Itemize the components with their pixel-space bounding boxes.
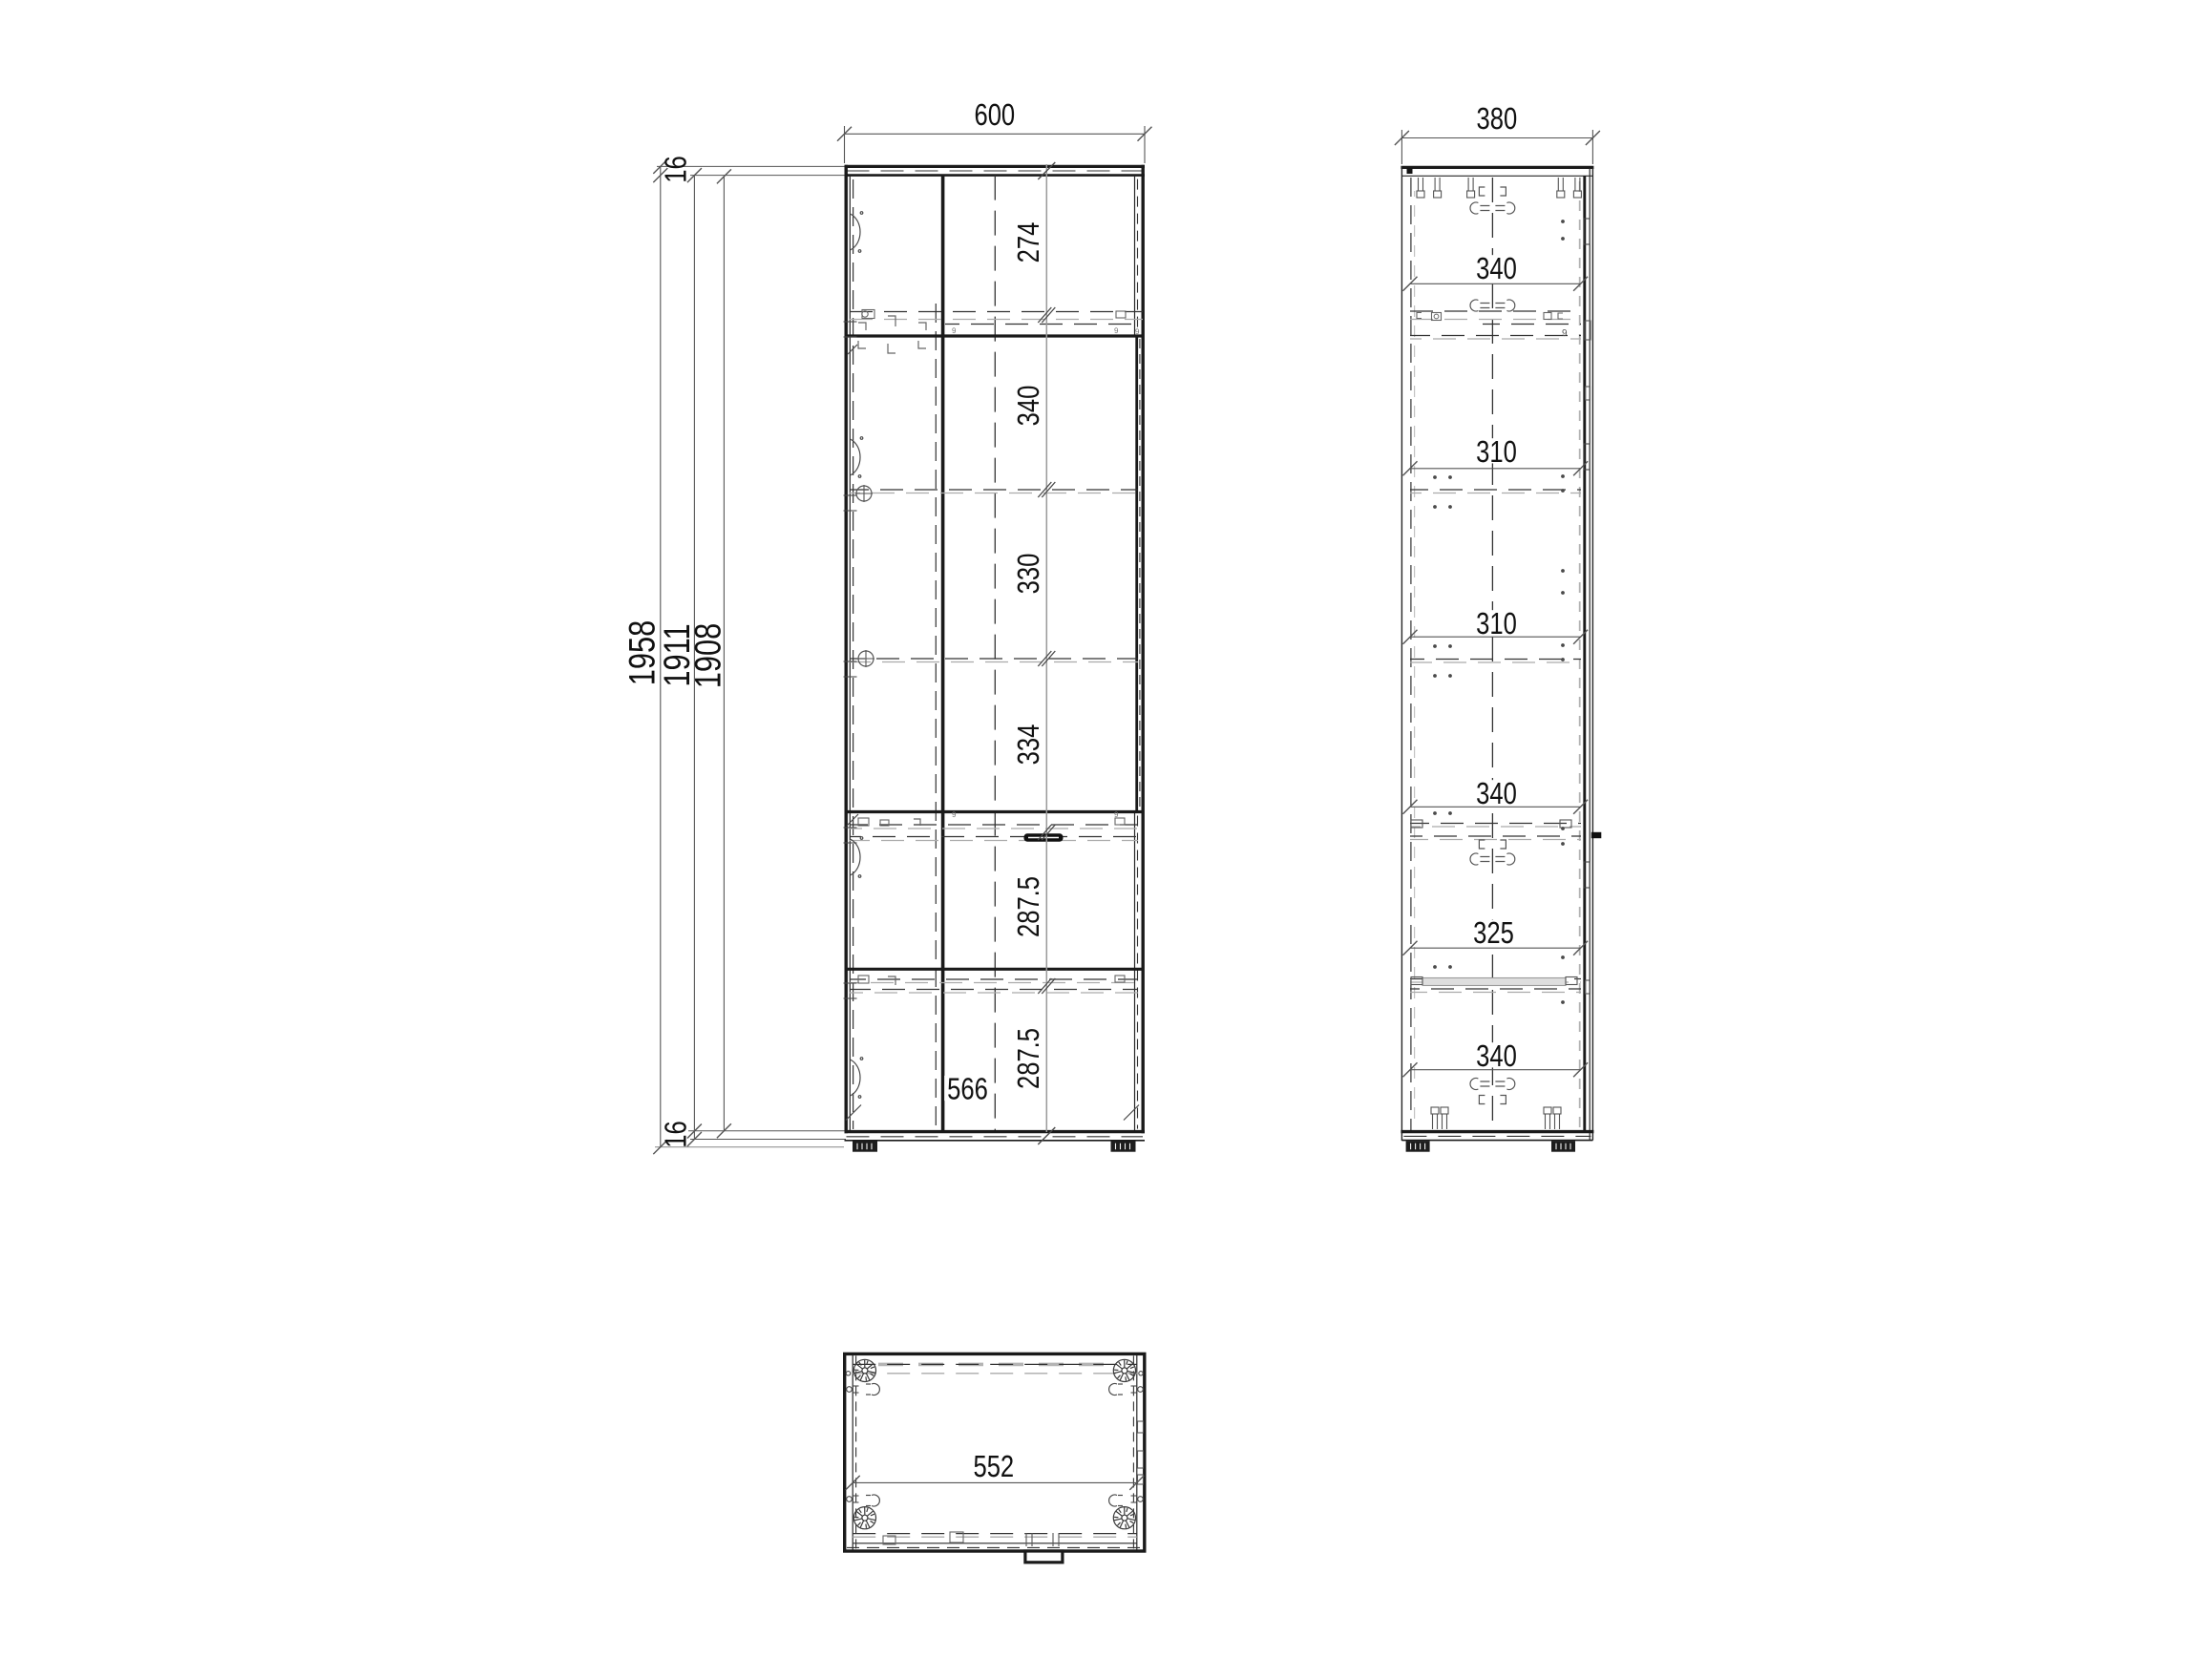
svg-text:566: 566 (947, 1072, 988, 1106)
svg-text:334: 334 (1011, 724, 1045, 766)
svg-text:287.5: 287.5 (1011, 1028, 1045, 1089)
svg-text:9: 9 (1135, 327, 1140, 336)
svg-text:340: 340 (1011, 386, 1045, 427)
svg-text:9: 9 (1114, 326, 1119, 335)
svg-text:16: 16 (659, 1121, 693, 1147)
svg-text:340: 340 (1476, 776, 1517, 810)
svg-text:600: 600 (974, 97, 1015, 132)
svg-text:9: 9 (1562, 328, 1568, 339)
svg-text:16: 16 (659, 156, 693, 182)
svg-text:1908: 1908 (687, 623, 728, 689)
svg-text:340: 340 (1476, 1039, 1517, 1073)
svg-text:552: 552 (973, 1449, 1014, 1483)
svg-text:325: 325 (1473, 915, 1514, 950)
svg-text:9: 9 (952, 326, 957, 335)
svg-text:287.5: 287.5 (1011, 876, 1045, 937)
svg-text:330: 330 (1011, 554, 1045, 595)
svg-text:340: 340 (1476, 251, 1517, 285)
svg-text:9: 9 (1114, 810, 1119, 819)
svg-text:9: 9 (952, 810, 957, 819)
svg-text:274: 274 (1011, 222, 1045, 263)
svg-text:310: 310 (1476, 606, 1517, 640)
svg-text:380: 380 (1477, 101, 1518, 136)
svg-text:310: 310 (1476, 434, 1517, 469)
